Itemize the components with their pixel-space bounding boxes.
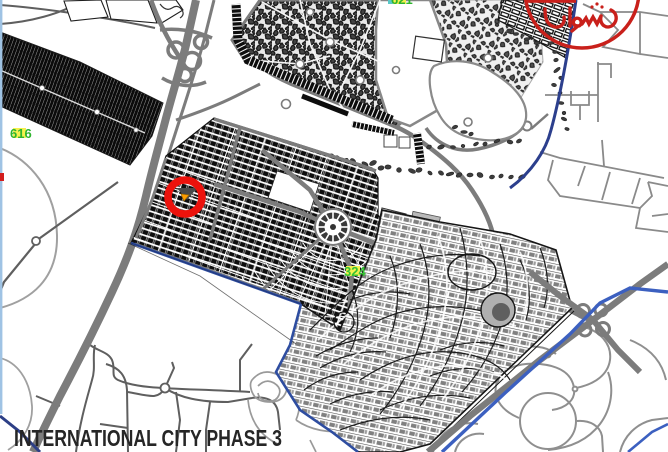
svg-text:621: 621 [391,0,413,7]
svg-text:616: 616 [10,126,32,141]
svg-text:INTERNATIONAL CITY PHASE 3: INTERNATIONAL CITY PHASE 3 [14,425,282,451]
svg-text:324: 324 [344,264,366,279]
